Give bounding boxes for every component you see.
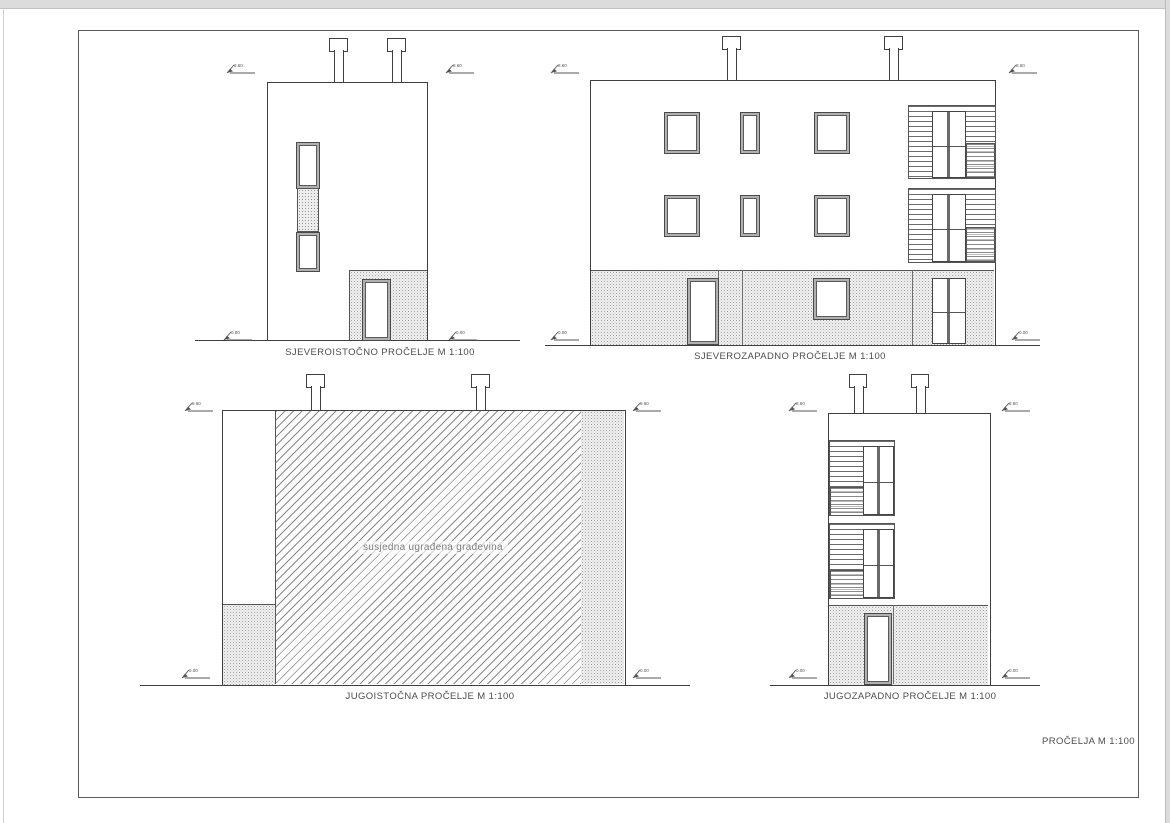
spandrel-panel [297, 188, 319, 232]
chimney-stack [392, 50, 402, 83]
elevation-marker-value: 8.60 [234, 64, 243, 69]
sheet-title: PROČELJA M 1:100 [935, 736, 1135, 747]
elevation-marker-value: 8.60 [192, 402, 201, 407]
elevation-marker: 8.60 [225, 62, 257, 75]
balcony-railing [966, 227, 995, 262]
elevation-marker-value: 8.60 [558, 64, 567, 69]
elevation-marker-value: 0.00 [558, 331, 567, 336]
elevation-marker-value: 0.00 [1019, 331, 1028, 336]
elevation-marker-value: 0.00 [456, 331, 465, 336]
page-background-top [0, 0, 1170, 9]
glazed-door [863, 529, 894, 598]
balcony-railing [830, 487, 865, 516]
elevation-marker-value: 0.00 [640, 669, 649, 674]
side-wall-strip [581, 411, 624, 684]
chimney-stack [854, 386, 864, 414]
chimney-stack [311, 386, 321, 411]
glazed-door [932, 278, 966, 344]
elevation-title: SJEVEROISTOČNO PROČELJE M 1:100 [230, 347, 530, 358]
elevation-marker: 8.60 [787, 400, 819, 413]
chimney-stack [916, 386, 926, 414]
elevation-marker: 8.60 [1000, 400, 1032, 413]
ground-floor-wall [829, 605, 988, 685]
elevation-marker: 0.00 [222, 329, 254, 342]
window [815, 196, 849, 236]
elevation-marker-value: 8.60 [796, 402, 805, 407]
elevation-marker-value: 0.00 [231, 331, 240, 336]
window [665, 196, 699, 236]
elevation-marker-value: 8.60 [453, 64, 462, 69]
entrance-door [363, 280, 390, 340]
elevation-marker: 0.00 [631, 667, 663, 680]
chimney-stack [889, 48, 899, 81]
entrance-door [865, 614, 891, 684]
window [665, 113, 699, 153]
chimney-stack [476, 386, 486, 411]
elevation-marker: 0.00 [447, 329, 479, 342]
wall-joint [912, 270, 913, 345]
balcony-railing [830, 570, 865, 599]
elevation-marker: 8.60 [1007, 62, 1039, 75]
elevation-marker: 8.60 [444, 62, 476, 75]
glazed-door [932, 111, 966, 178]
window-narrow [741, 196, 759, 236]
elevation-marker: 0.00 [787, 667, 819, 680]
elevation-marker-value: 0.00 [189, 669, 198, 674]
entrance-door [688, 279, 718, 344]
elevation-marker-value: 0.00 [796, 669, 805, 674]
wall-joint [893, 605, 894, 684]
elevation-marker-value: 8.60 [640, 402, 649, 407]
elevation-marker: 8.60 [631, 400, 663, 413]
window [815, 113, 849, 153]
wall-joint [742, 270, 743, 345]
chimney-stack [334, 50, 344, 83]
elevation-marker: 0.00 [1000, 667, 1032, 680]
wall-joint [718, 270, 719, 345]
balcony-railing [966, 143, 995, 178]
window [297, 143, 319, 188]
elevation-marker: 0.00 [549, 329, 581, 342]
elevation-marker: 8.60 [183, 400, 215, 413]
glazed-door [932, 194, 966, 262]
elevation-marker: 8.60 [549, 62, 581, 75]
window [297, 233, 319, 271]
elevation-marker: 0.00 [1010, 329, 1042, 342]
elevation-title: JUGOZAPADNO PROČELJE M 1:100 [760, 691, 1060, 702]
chimney-stack [727, 48, 737, 81]
window [814, 279, 849, 319]
elevation-marker: 0.00 [180, 667, 212, 680]
plinth-wall [223, 604, 275, 685]
elevation-title: JUGOISTOČNA PROČELJE M 1:100 [280, 691, 580, 702]
neighbor-building-annotation: susjedna ugrađena građevina [358, 541, 508, 554]
elevation-marker-value: 8.60 [1009, 402, 1018, 407]
window-narrow [741, 113, 759, 153]
glazed-door [863, 446, 894, 515]
elevation-marker-value: 8.60 [1016, 64, 1025, 69]
elevation-marker-value: 0.00 [1009, 669, 1018, 674]
page-edge [3, 8, 4, 823]
elevation-title: SJEVEROZAPADNO PROČELJE M 1:100 [640, 351, 940, 362]
page-background-right [1165, 0, 1170, 823]
